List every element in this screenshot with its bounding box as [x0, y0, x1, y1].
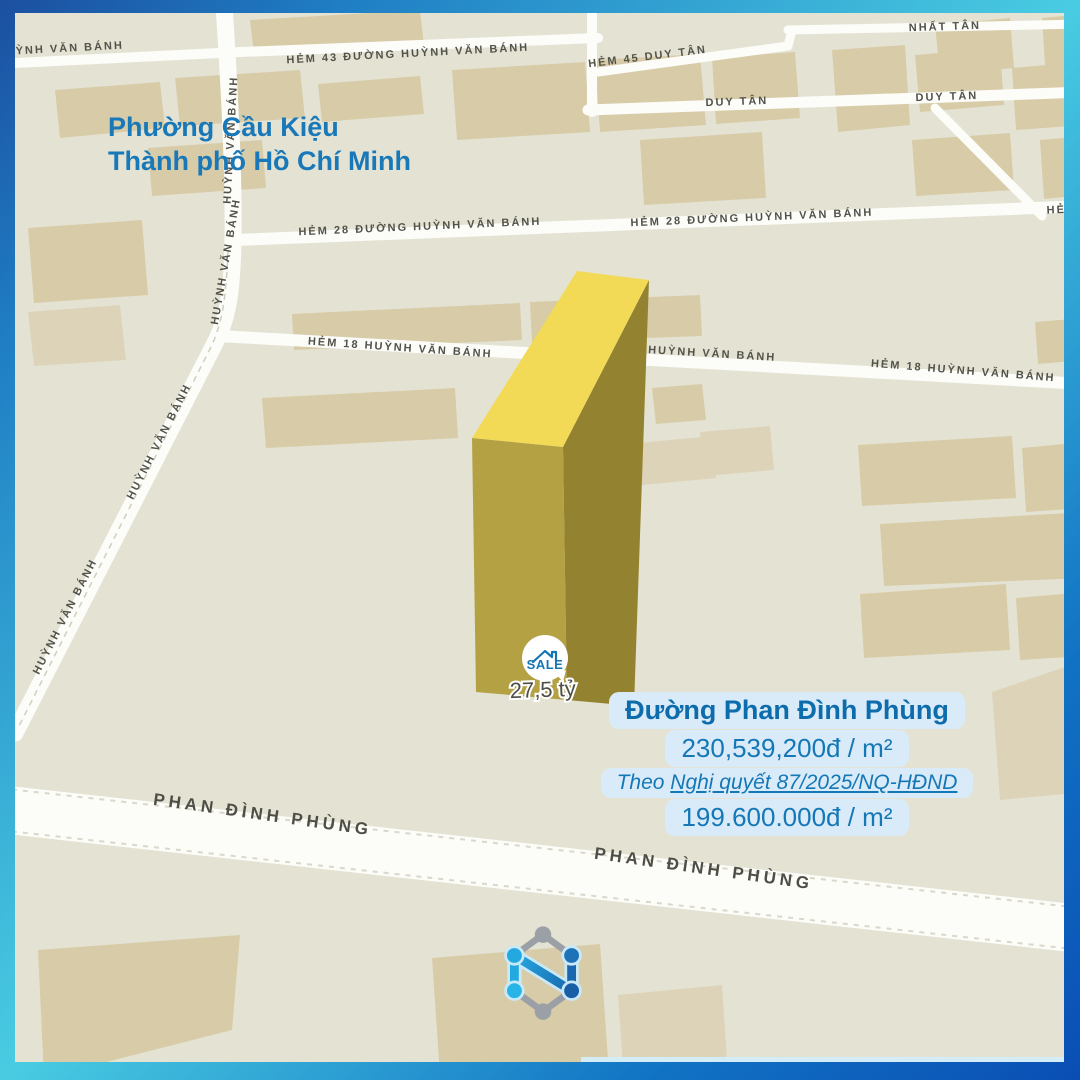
info-legal-note: Theo Nghị quyết 87/2025/NQ-HĐND [601, 768, 974, 798]
brand-logo [488, 920, 598, 1035]
info-old-price: 199.600.000đ / m² [665, 799, 908, 836]
info-new-price: 230,539,200đ / m² [665, 730, 908, 767]
street-label: HẺM [1046, 202, 1064, 216]
resolution-link[interactable]: Nghị quyết 87/2025/NQ-HĐND [670, 771, 957, 794]
price-label: 27,5 tỷ [509, 676, 576, 703]
info-street-name: Đường Phan Đình Phùng [609, 692, 965, 729]
street-label: DUY TÂN [915, 89, 978, 104]
map-bottom-strip [581, 1057, 1064, 1062]
region-title: Phường Cầu Kiệu Thành phố Hồ Chí Minh [108, 110, 411, 178]
region-title-city: Thành phố Hồ Chí Minh [108, 144, 411, 178]
poster-frame: HUỲNH VĂN BÁNH HẺM 43 ĐƯỜNG HUỲNH VĂN BÁ… [0, 0, 1080, 1080]
street-label: NHẤT TÂN [909, 19, 982, 35]
region-title-ward: Phường Cầu Kiệu [108, 110, 411, 144]
sale-badge-label: SALE [527, 657, 564, 672]
note-prefix: Theo [617, 771, 671, 794]
street-label: DUY TÂN [705, 94, 768, 109]
price-info-box: Đường Phan Đình Phùng 230,539,200đ / m² … [570, 692, 1004, 836]
